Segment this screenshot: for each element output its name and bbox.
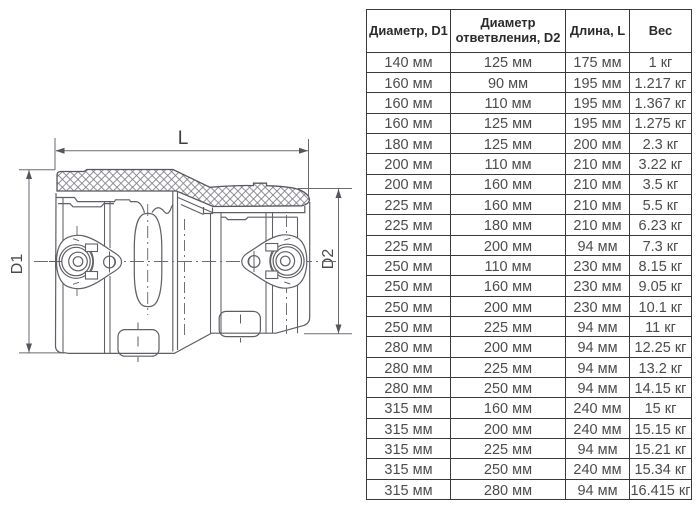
svg-text:D2: D2 xyxy=(320,249,337,270)
svg-text:D1: D1 xyxy=(9,254,26,275)
svg-text:L: L xyxy=(178,128,189,149)
